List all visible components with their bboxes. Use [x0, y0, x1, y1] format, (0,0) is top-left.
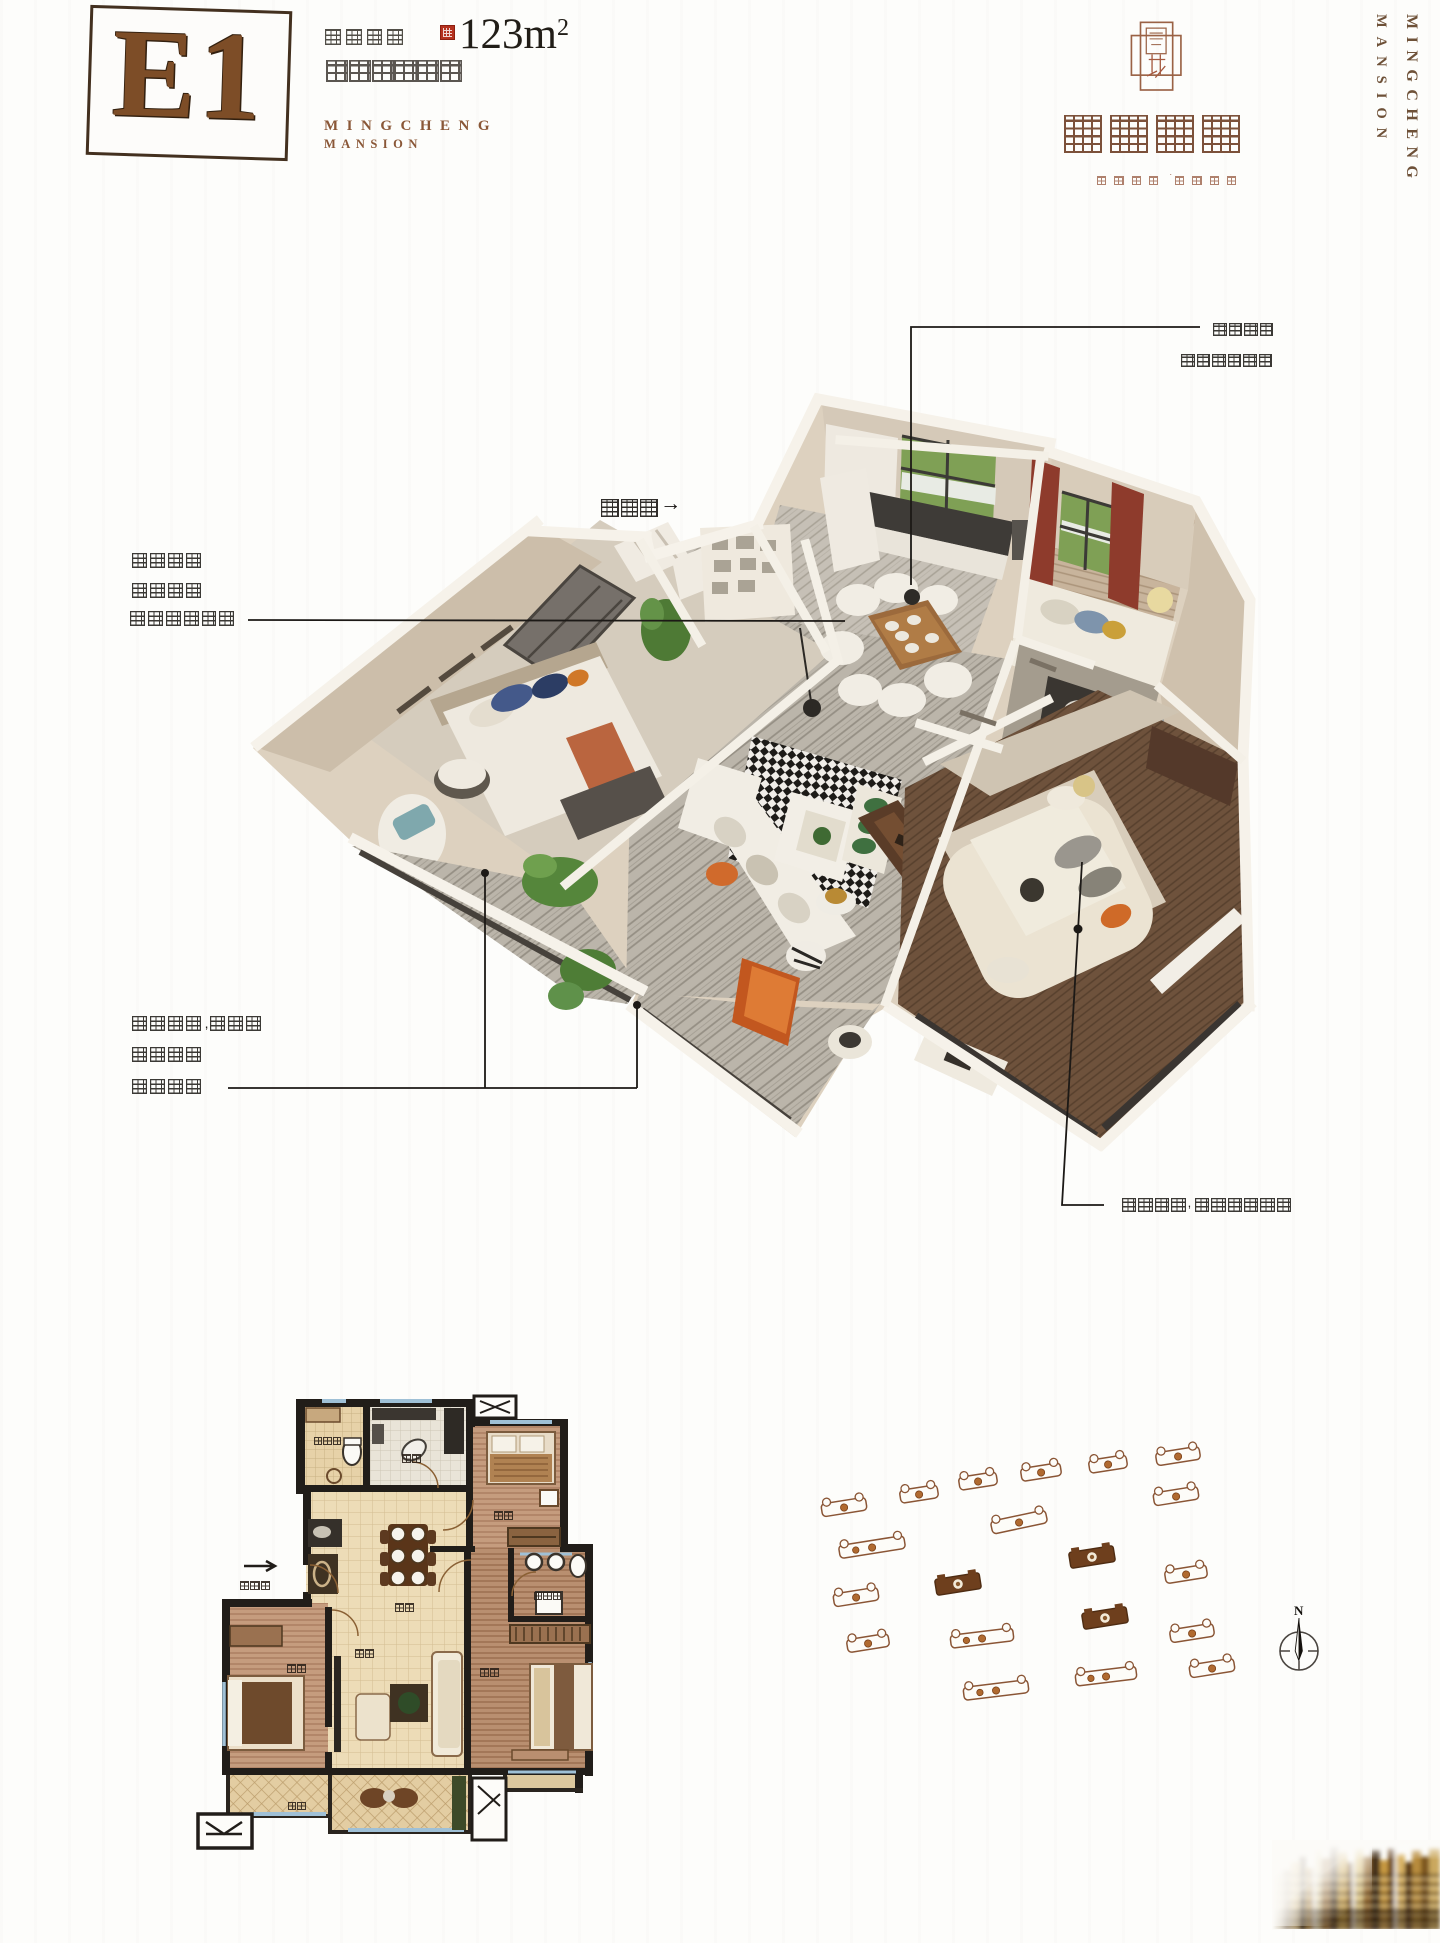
- svg-text:N: N: [1294, 1603, 1304, 1618]
